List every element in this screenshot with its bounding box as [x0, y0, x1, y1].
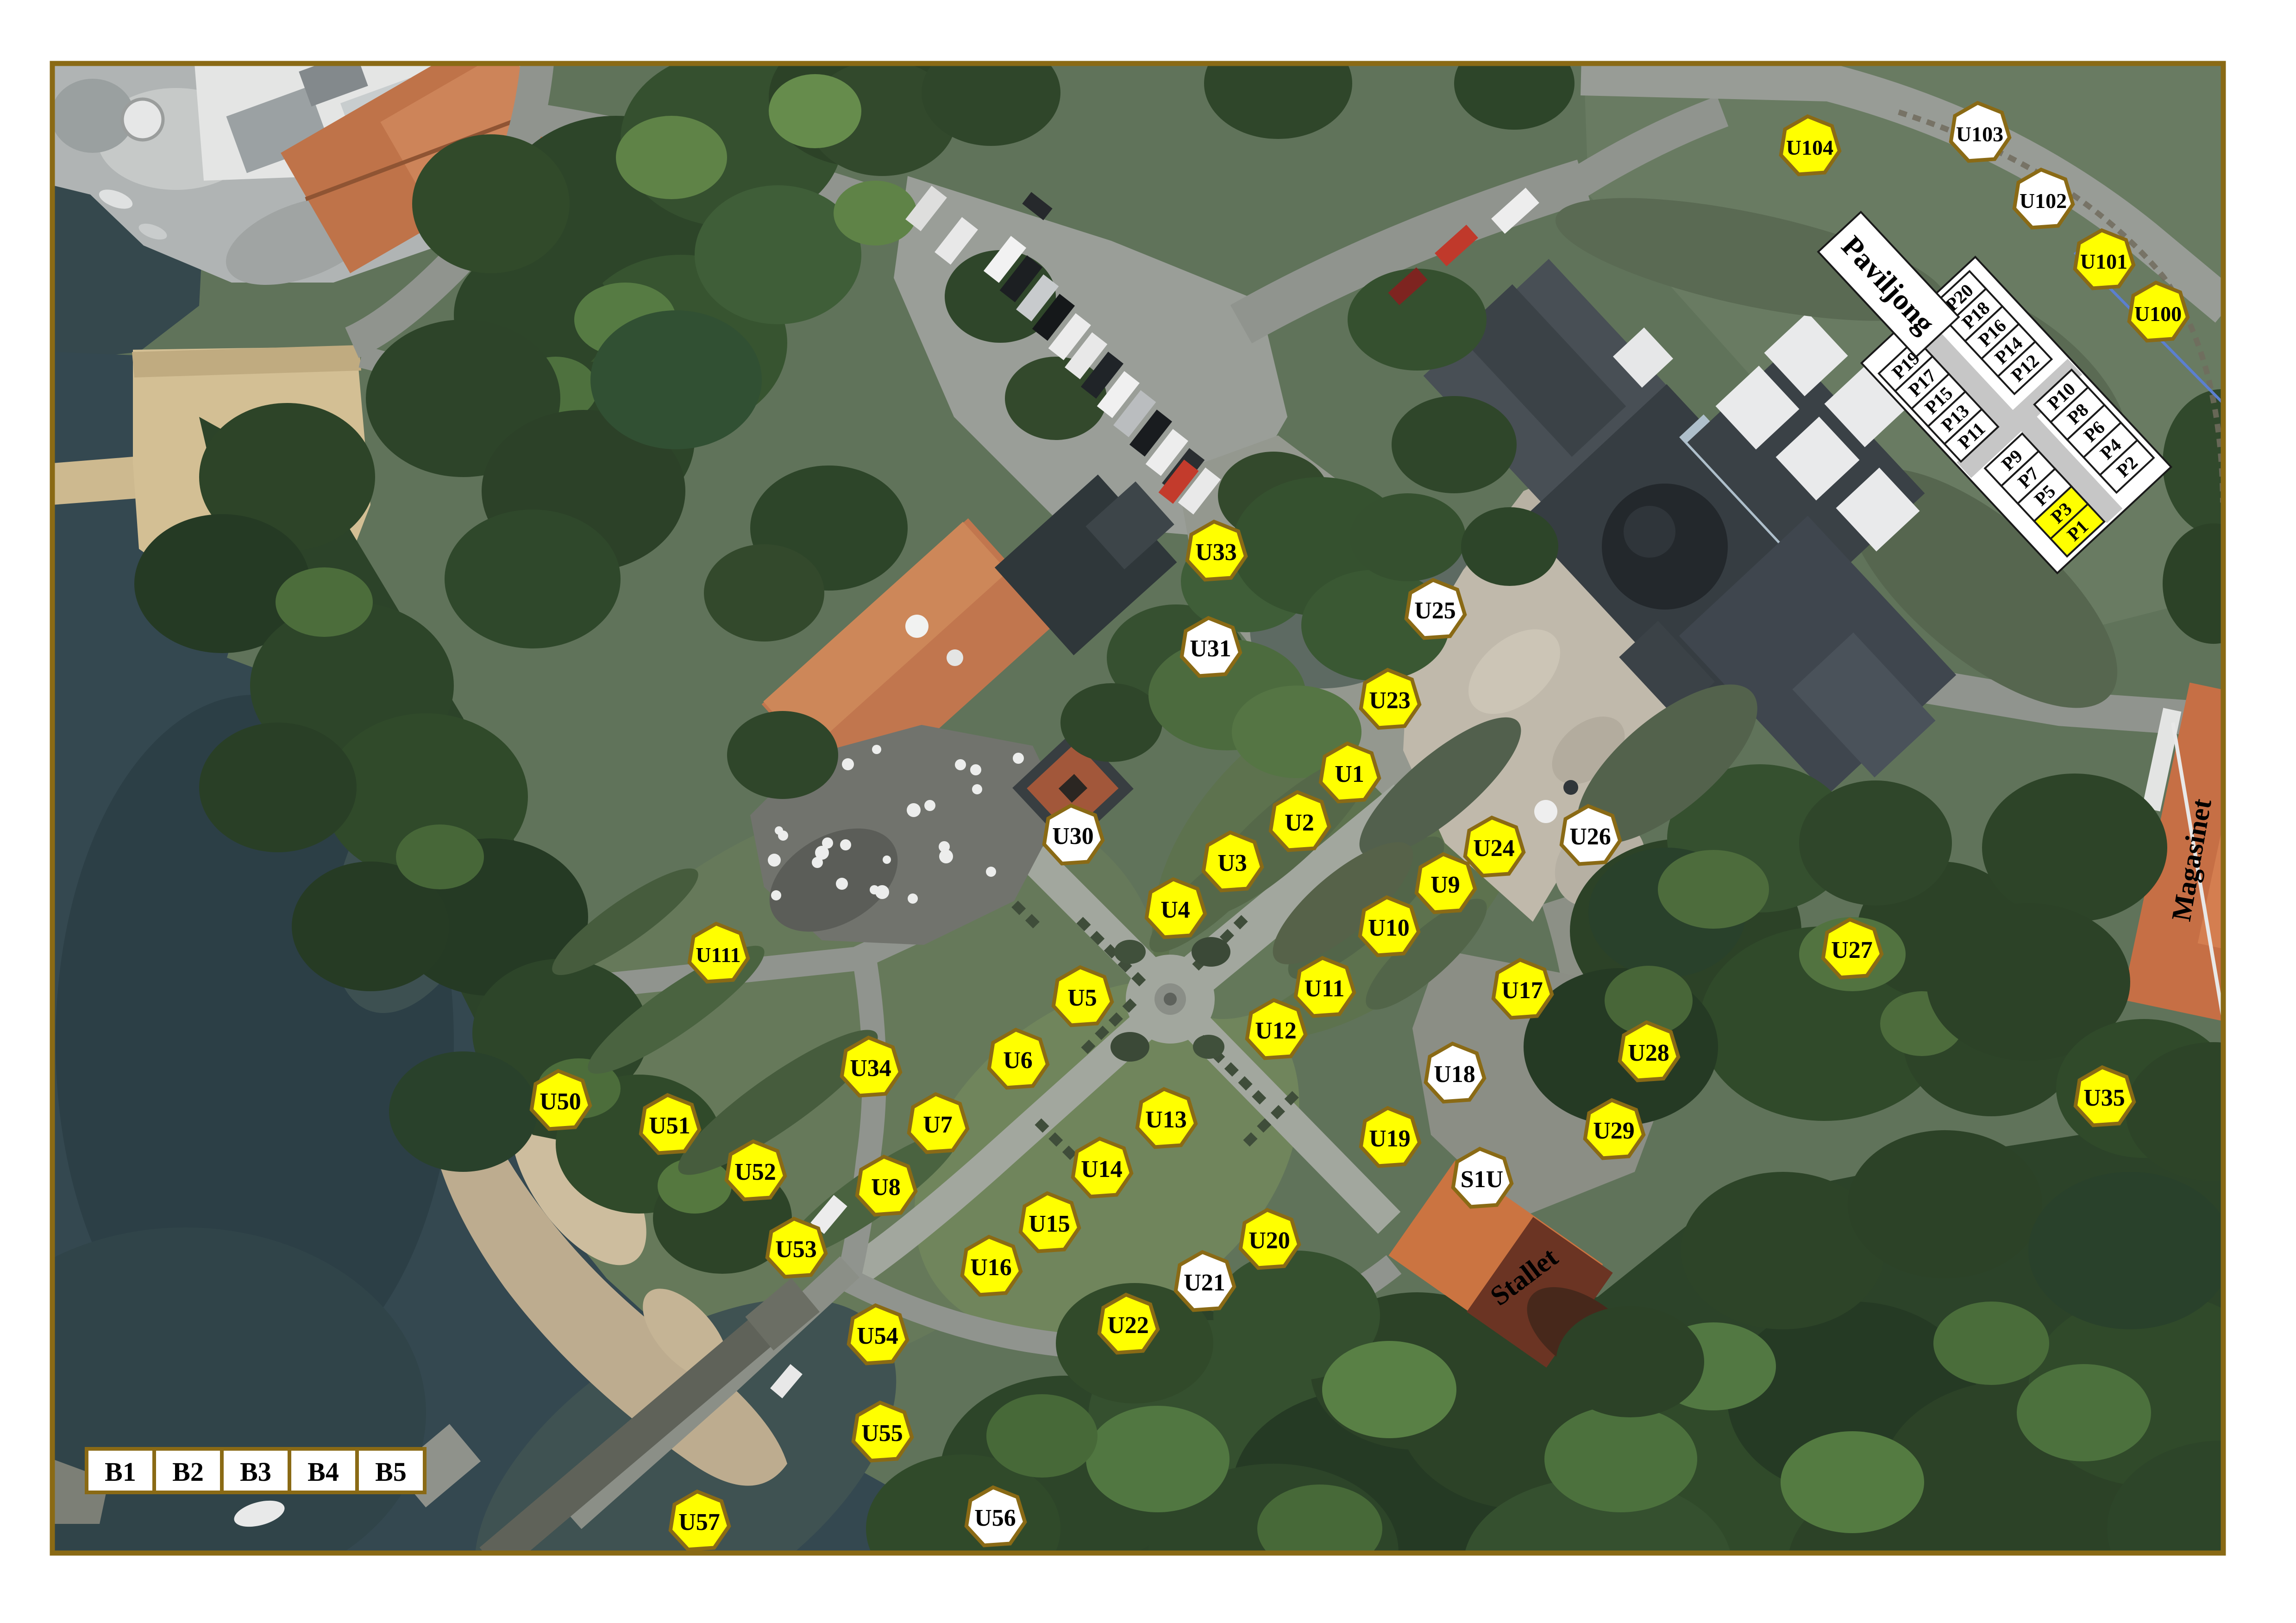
- svg-text:U14: U14: [1081, 1156, 1123, 1183]
- svg-text:B5: B5: [375, 1457, 407, 1487]
- svg-text:U1: U1: [1335, 761, 1364, 787]
- svg-text:U6: U6: [1003, 1047, 1033, 1074]
- svg-text:U7: U7: [923, 1112, 953, 1138]
- svg-text:U15: U15: [1029, 1211, 1070, 1237]
- svg-text:U4: U4: [1161, 897, 1190, 923]
- svg-text:U103: U103: [1956, 122, 2003, 146]
- svg-text:U26: U26: [1569, 824, 1611, 850]
- svg-text:U24: U24: [1473, 835, 1515, 862]
- svg-text:U23: U23: [1369, 687, 1411, 714]
- svg-text:B1: B1: [105, 1457, 136, 1487]
- svg-text:U30: U30: [1052, 823, 1094, 849]
- svg-text:U2: U2: [1285, 810, 1314, 836]
- svg-text:U102: U102: [2020, 189, 2067, 213]
- svg-text:S1U: S1U: [1461, 1166, 1503, 1193]
- svg-text:U18: U18: [1434, 1061, 1475, 1088]
- svg-text:B2: B2: [172, 1457, 204, 1487]
- svg-text:U111: U111: [696, 943, 740, 967]
- svg-text:U51: U51: [649, 1113, 690, 1139]
- svg-text:U35: U35: [2083, 1085, 2125, 1111]
- svg-text:U17: U17: [1501, 977, 1543, 1004]
- svg-text:U11: U11: [1305, 975, 1345, 1002]
- svg-text:U25: U25: [1414, 598, 1456, 624]
- svg-text:U34: U34: [850, 1055, 891, 1082]
- svg-text:B4: B4: [307, 1457, 339, 1487]
- svg-text:U50: U50: [539, 1088, 581, 1115]
- svg-text:U10: U10: [1368, 915, 1410, 941]
- svg-text:U20: U20: [1248, 1227, 1290, 1254]
- svg-text:U13: U13: [1145, 1107, 1187, 1133]
- svg-text:U101: U101: [2080, 250, 2127, 273]
- svg-text:B3: B3: [240, 1457, 271, 1487]
- svg-text:U52: U52: [734, 1159, 776, 1185]
- svg-text:U104: U104: [1786, 136, 1833, 159]
- svg-text:U31: U31: [1190, 635, 1231, 662]
- svg-text:U56: U56: [974, 1505, 1016, 1531]
- svg-text:U29: U29: [1593, 1118, 1635, 1144]
- svg-text:U19: U19: [1369, 1126, 1411, 1152]
- svg-text:U28: U28: [1628, 1040, 1669, 1066]
- svg-text:U57: U57: [678, 1509, 720, 1535]
- svg-text:U9: U9: [1430, 872, 1460, 898]
- svg-text:U54: U54: [857, 1323, 898, 1349]
- svg-text:U55: U55: [861, 1420, 903, 1447]
- svg-text:U12: U12: [1255, 1018, 1297, 1044]
- svg-text:U33: U33: [1195, 539, 1237, 566]
- svg-text:U8: U8: [871, 1174, 901, 1201]
- svg-text:U22: U22: [1107, 1312, 1149, 1339]
- svg-text:U21: U21: [1184, 1270, 1225, 1296]
- svg-text:U53: U53: [775, 1236, 817, 1263]
- svg-text:U27: U27: [1831, 937, 1873, 963]
- svg-text:U3: U3: [1217, 850, 1247, 876]
- svg-text:U16: U16: [970, 1254, 1012, 1281]
- svg-text:U100: U100: [2134, 302, 2182, 326]
- svg-text:U5: U5: [1067, 985, 1097, 1011]
